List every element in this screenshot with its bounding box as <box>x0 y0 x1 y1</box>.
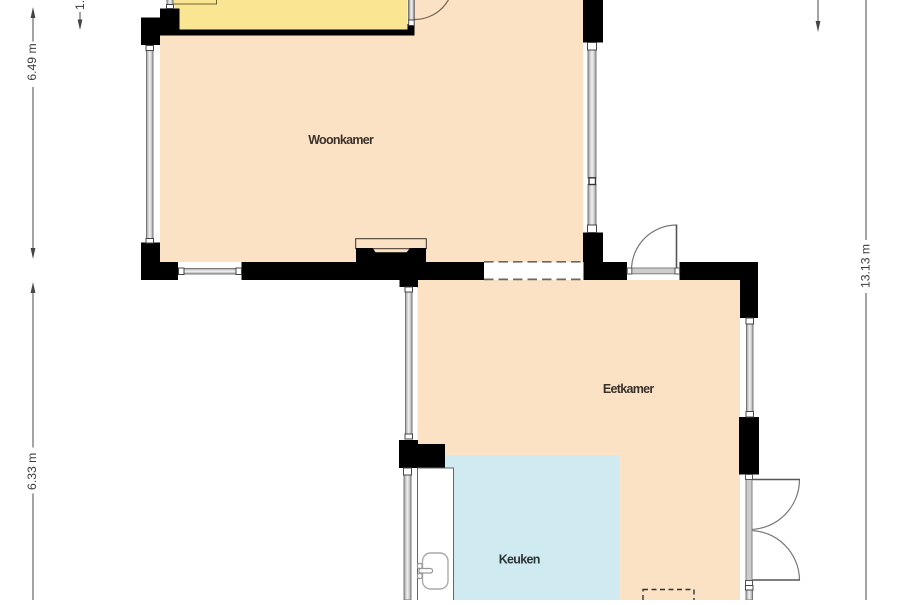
svg-text:Keuken: Keuken <box>499 553 540 567</box>
svg-text:1.35 m: 1.35 m <box>73 0 87 10</box>
svg-text:6.33 m: 6.33 m <box>25 453 39 490</box>
svg-text:6.49 m: 6.49 m <box>25 43 39 80</box>
svg-text:13.13 m: 13.13 m <box>859 244 873 288</box>
svg-text:Woonkamer: Woonkamer <box>308 133 374 147</box>
svg-text:Eetkamer: Eetkamer <box>603 382 655 396</box>
